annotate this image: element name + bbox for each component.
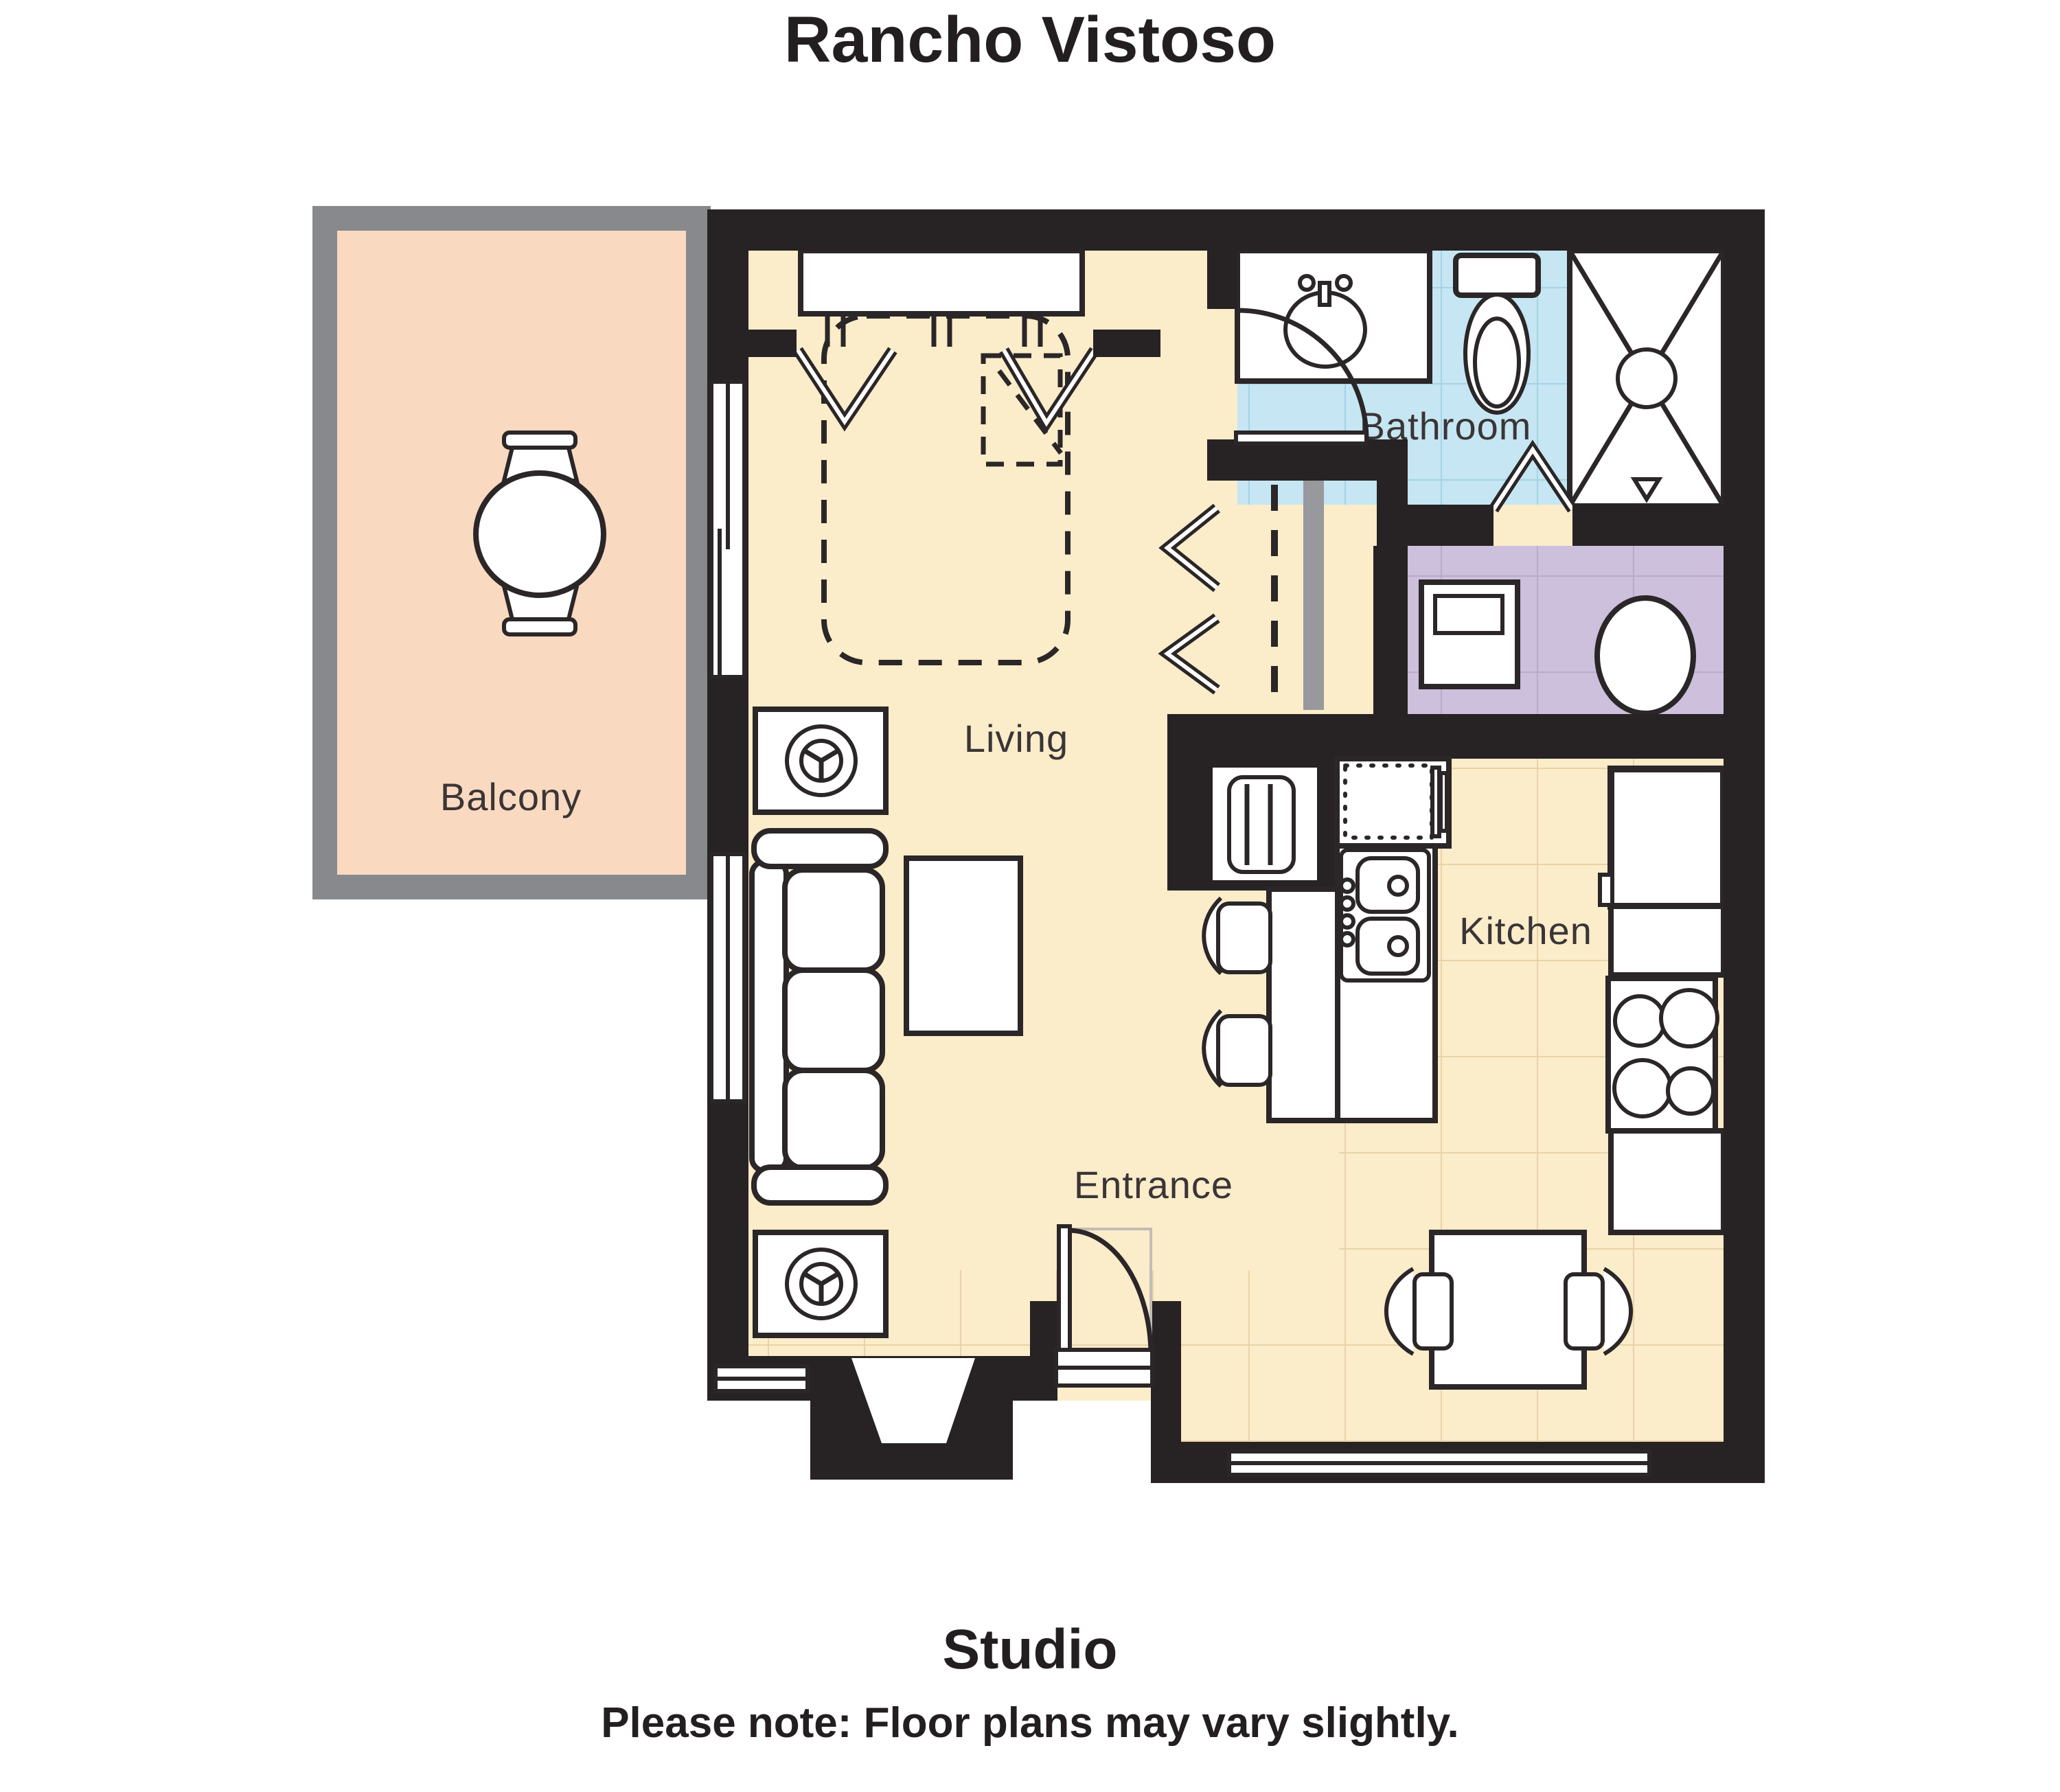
fridge-icon xyxy=(1600,769,1724,906)
entry-threshold xyxy=(1056,1350,1152,1386)
kitchen-label: Kitchen xyxy=(1459,909,1592,952)
kitchen-sink-icon xyxy=(1337,846,1435,1121)
balcony-slider-window xyxy=(711,382,744,677)
balcony-label: Balcony xyxy=(440,775,582,818)
entrance-label: Entrance xyxy=(1074,1163,1233,1206)
shower-icon xyxy=(1570,251,1724,506)
balcony-room: Balcony xyxy=(312,206,711,899)
water-heater-icon xyxy=(1597,598,1693,713)
coffee-table-icon xyxy=(906,858,1020,1033)
kitchen-counter-right-upper xyxy=(1611,906,1724,975)
living-label: Living xyxy=(964,717,1068,760)
dining-window xyxy=(1229,1451,1649,1475)
floor-plan: Rancho Vistoso Balcony xyxy=(0,0,2060,1792)
wall-top xyxy=(707,209,1765,251)
floor-plan-page: Rancho Vistoso Balcony xyxy=(0,0,2060,1792)
bar-stool-bottom xyxy=(1204,1011,1270,1086)
hvac-unit-icon xyxy=(1229,777,1294,872)
bar-counter-icon xyxy=(1269,889,1338,1121)
wall-kitchen-top xyxy=(1167,714,1724,759)
end-table-lamp-top xyxy=(755,709,886,812)
unit-type-label: Studio xyxy=(942,1618,1117,1681)
page-title: Rancho Vistoso xyxy=(784,3,1276,76)
wall-right xyxy=(1724,209,1765,1483)
floorplan-note: Please note: Floor plans may vary slight… xyxy=(601,1699,1459,1747)
dishwasher-icon xyxy=(1337,759,1449,846)
end-table-lamp-bottom xyxy=(755,1232,886,1335)
bottom-left-window xyxy=(716,1366,808,1391)
pocket-door-icon xyxy=(1303,481,1324,710)
sofa-icon xyxy=(752,831,886,1203)
living-window xyxy=(711,854,744,1101)
stove-icon xyxy=(1608,978,1717,1131)
washer-icon xyxy=(1421,582,1518,687)
kitchen-counter-right-lower xyxy=(1611,1131,1724,1232)
bar-stool-top xyxy=(1204,898,1270,974)
